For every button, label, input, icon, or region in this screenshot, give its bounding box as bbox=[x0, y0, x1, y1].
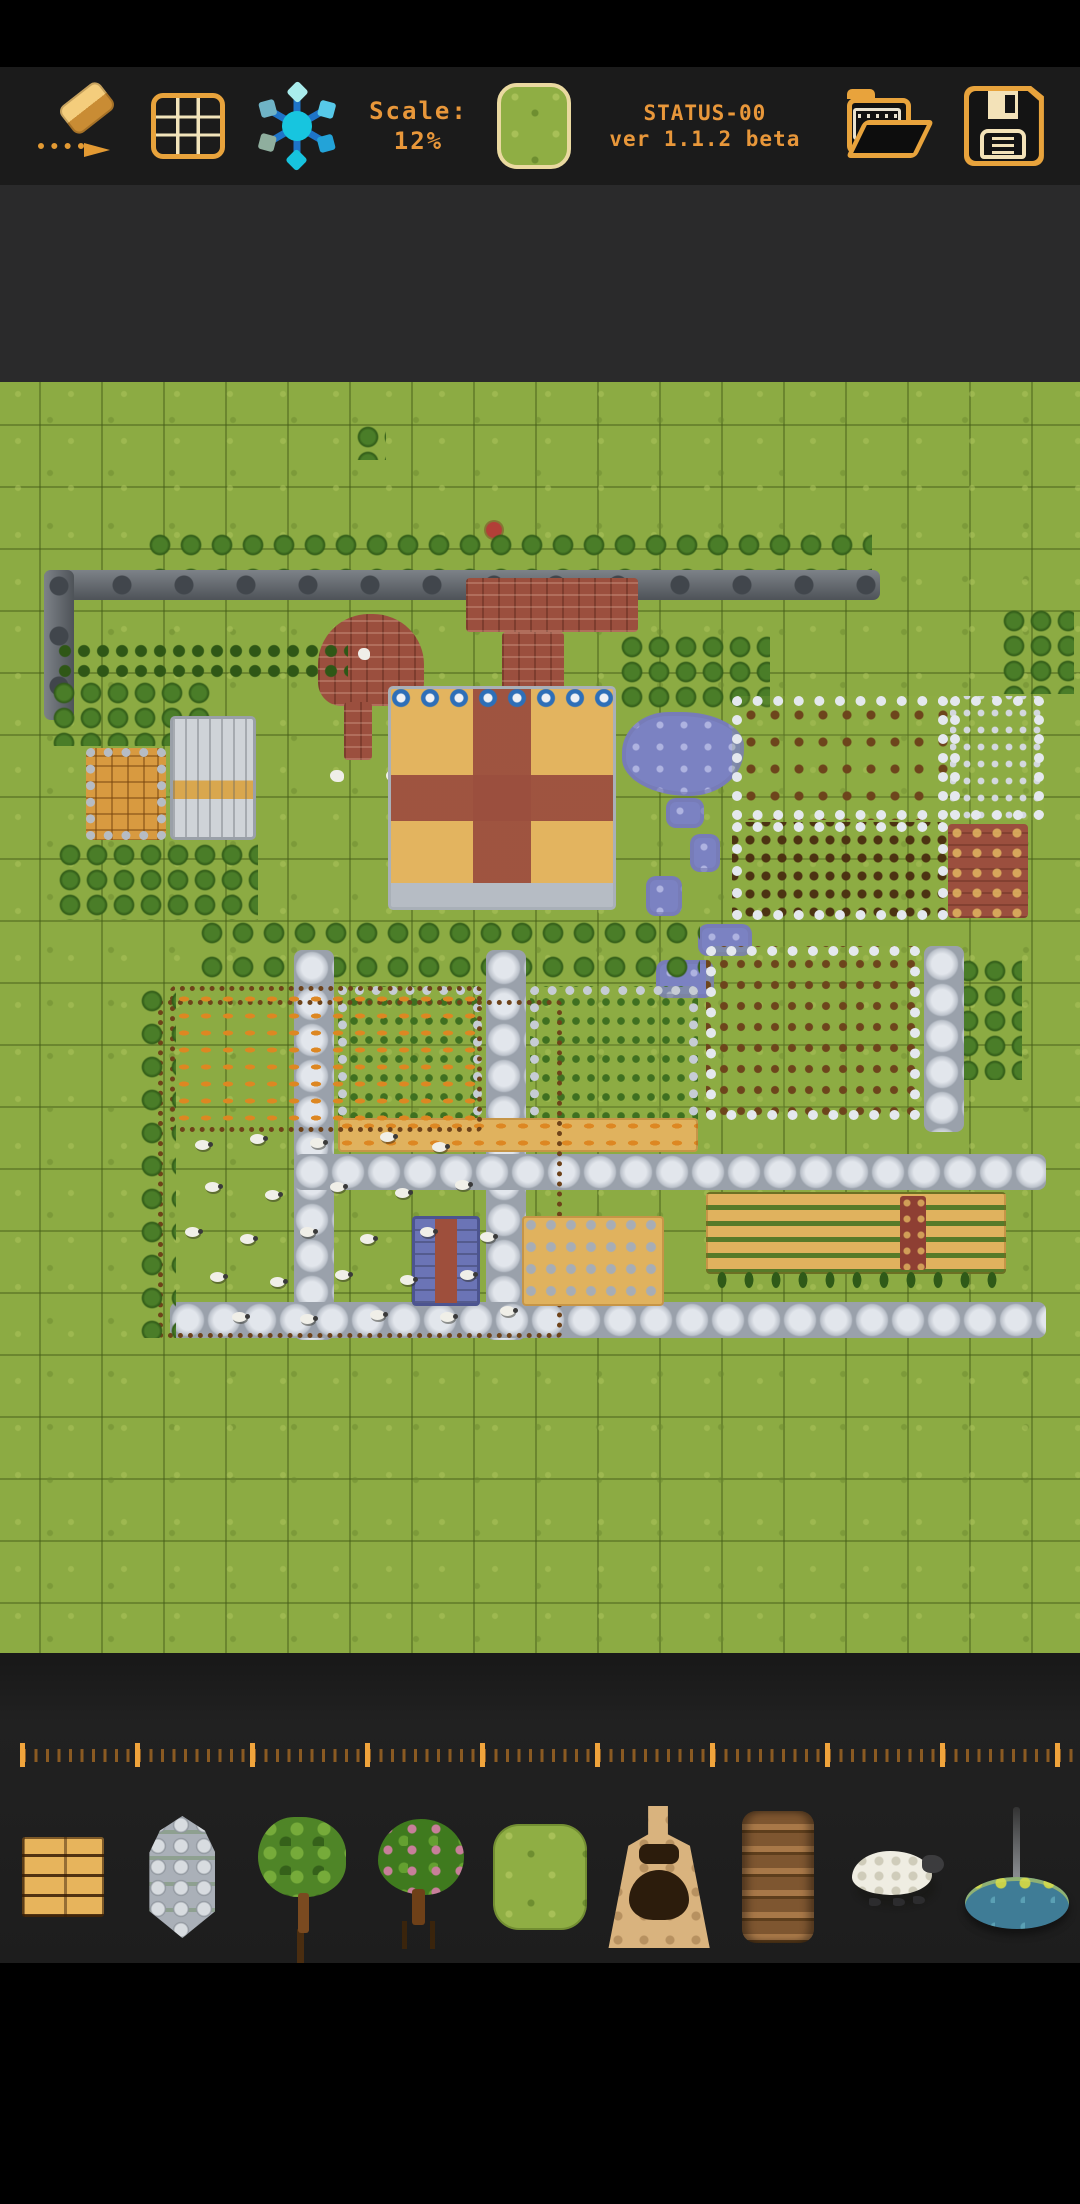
sheep-sprite bbox=[195, 1140, 210, 1150]
current-tile-grass-thumb bbox=[497, 83, 571, 169]
sheep-sprite bbox=[330, 1182, 345, 1192]
e-field-bushes bbox=[732, 822, 948, 920]
palette-item-fountain[interactable] bbox=[961, 1797, 1073, 1957]
sheep-sprite bbox=[360, 1234, 375, 1244]
eraser-arrow-icon bbox=[84, 143, 110, 157]
stream-2 bbox=[690, 834, 720, 872]
sheep-sprite bbox=[432, 1142, 447, 1152]
palette-item-fruit[interactable] bbox=[365, 1797, 477, 1957]
fruit-tree-tile-icon bbox=[376, 1819, 466, 1935]
dove-1 bbox=[330, 770, 344, 782]
mid-tree-band bbox=[200, 922, 700, 982]
grid-icon bbox=[151, 93, 225, 159]
save-button[interactable] bbox=[964, 86, 1044, 166]
status-text: STATUS-00 bbox=[600, 100, 810, 126]
palette-item-kiln[interactable] bbox=[603, 1797, 715, 1957]
sheep-sprite bbox=[270, 1277, 285, 1287]
palette-item-grass[interactable] bbox=[484, 1797, 596, 1957]
sheep-sprite bbox=[395, 1188, 410, 1198]
ruler-major-ticks bbox=[20, 1743, 1074, 1767]
north-wall bbox=[44, 570, 880, 600]
gable-house bbox=[170, 716, 256, 840]
sheep-sprite bbox=[370, 1310, 385, 1320]
south-grove-left bbox=[58, 844, 258, 920]
kiln-tile-icon bbox=[604, 1806, 714, 1948]
orchard-field bbox=[706, 946, 920, 1120]
west-tree-column bbox=[140, 990, 176, 1338]
fountain-tile-icon bbox=[965, 1807, 1069, 1947]
stone-house bbox=[86, 748, 166, 840]
version-text: ver 1.1.2 beta bbox=[600, 126, 810, 152]
tree-tile-icon bbox=[254, 1817, 350, 1937]
sheep-sprite bbox=[250, 1134, 265, 1144]
sheep-sprite bbox=[265, 1190, 280, 1200]
e-brick-patch bbox=[948, 824, 1028, 918]
sheep-sprite bbox=[460, 1270, 475, 1280]
sheep-sprite bbox=[210, 1272, 225, 1282]
bottom-panel bbox=[0, 1653, 1080, 1963]
sand-field bbox=[706, 1192, 1006, 1274]
wood-planks-tile-icon bbox=[22, 1837, 104, 1917]
toolbar: Scale: 12% STATUS-00 ver 1.1.2 beta bbox=[0, 67, 1080, 185]
stone-pillar-tile-icon bbox=[149, 1816, 215, 1938]
ne-field-stones bbox=[950, 696, 1044, 820]
sheep-sprite bbox=[185, 1227, 200, 1237]
barrel-stack-tile-icon bbox=[742, 1811, 814, 1943]
sheep-sprite bbox=[310, 1138, 325, 1148]
sheep-sprite bbox=[335, 1270, 350, 1280]
ne-grove bbox=[1002, 610, 1074, 694]
sheep-tile-icon bbox=[852, 1845, 944, 1909]
wall-tree-row bbox=[148, 534, 872, 570]
sheep-sprite bbox=[500, 1306, 515, 1316]
sheep-sprite bbox=[300, 1227, 315, 1237]
cypress-row bbox=[710, 1266, 1002, 1296]
sheep-sprite bbox=[480, 1232, 495, 1242]
current-tile-button[interactable] bbox=[497, 83, 571, 169]
stream-3 bbox=[646, 876, 682, 916]
pasture-crops bbox=[170, 986, 482, 1132]
map-canvas[interactable] bbox=[0, 382, 1080, 1653]
brick-trail bbox=[344, 702, 372, 760]
sheep-sprite bbox=[400, 1275, 415, 1285]
status-bar-area bbox=[0, 0, 1080, 67]
dove-3 bbox=[358, 648, 370, 660]
palette-item-sheep[interactable] bbox=[842, 1797, 954, 1957]
transform-button[interactable] bbox=[254, 83, 340, 169]
e-grove bbox=[956, 960, 1022, 1080]
palette-item-tree[interactable] bbox=[246, 1797, 358, 1957]
sheep-sprite bbox=[455, 1180, 470, 1190]
tile-palette bbox=[0, 1793, 1080, 1961]
bottom-bar bbox=[0, 1963, 1080, 2204]
sheep-sprite bbox=[380, 1132, 395, 1142]
status-block: STATUS-00 ver 1.1.2 beta bbox=[600, 100, 810, 153]
pond bbox=[622, 712, 744, 796]
sheep-sprite bbox=[240, 1234, 255, 1244]
sheep-sprite bbox=[232, 1312, 247, 1322]
sand-field-red bbox=[900, 1196, 926, 1270]
grid-toggle-button[interactable] bbox=[151, 93, 225, 159]
hedge-row bbox=[56, 642, 348, 684]
scale-value: 12% bbox=[369, 126, 468, 156]
zoom-ruler[interactable] bbox=[14, 1742, 1074, 1768]
palette-item-wood[interactable] bbox=[7, 1797, 119, 1957]
scale-indicator: Scale: 12% bbox=[369, 96, 468, 156]
lone-tree bbox=[356, 426, 386, 460]
open-file-button[interactable] bbox=[839, 84, 935, 168]
eraser-button[interactable] bbox=[36, 83, 122, 169]
workspace-margin bbox=[0, 185, 1080, 382]
palette-item-stone[interactable] bbox=[126, 1797, 238, 1957]
stream-1 bbox=[666, 798, 704, 828]
kiln-yard bbox=[522, 1216, 664, 1306]
grass-tile-icon bbox=[493, 1824, 587, 1930]
scale-label: Scale: bbox=[369, 96, 468, 126]
path-east bbox=[924, 946, 964, 1132]
manor bbox=[388, 686, 616, 910]
brick-gate bbox=[466, 578, 638, 632]
app-screen: Scale: 12% STATUS-00 ver 1.1.2 beta bbox=[0, 0, 1080, 2204]
sheep-sprite bbox=[300, 1314, 315, 1324]
eraser-icon bbox=[57, 79, 117, 137]
eraser-trail-icon bbox=[38, 143, 84, 149]
sheep-sprite bbox=[205, 1182, 220, 1192]
palette-item-barrels[interactable] bbox=[722, 1797, 834, 1957]
ne-field-hay bbox=[732, 696, 948, 820]
sheep-sprite bbox=[420, 1227, 435, 1237]
sheep-sprite bbox=[440, 1312, 455, 1322]
